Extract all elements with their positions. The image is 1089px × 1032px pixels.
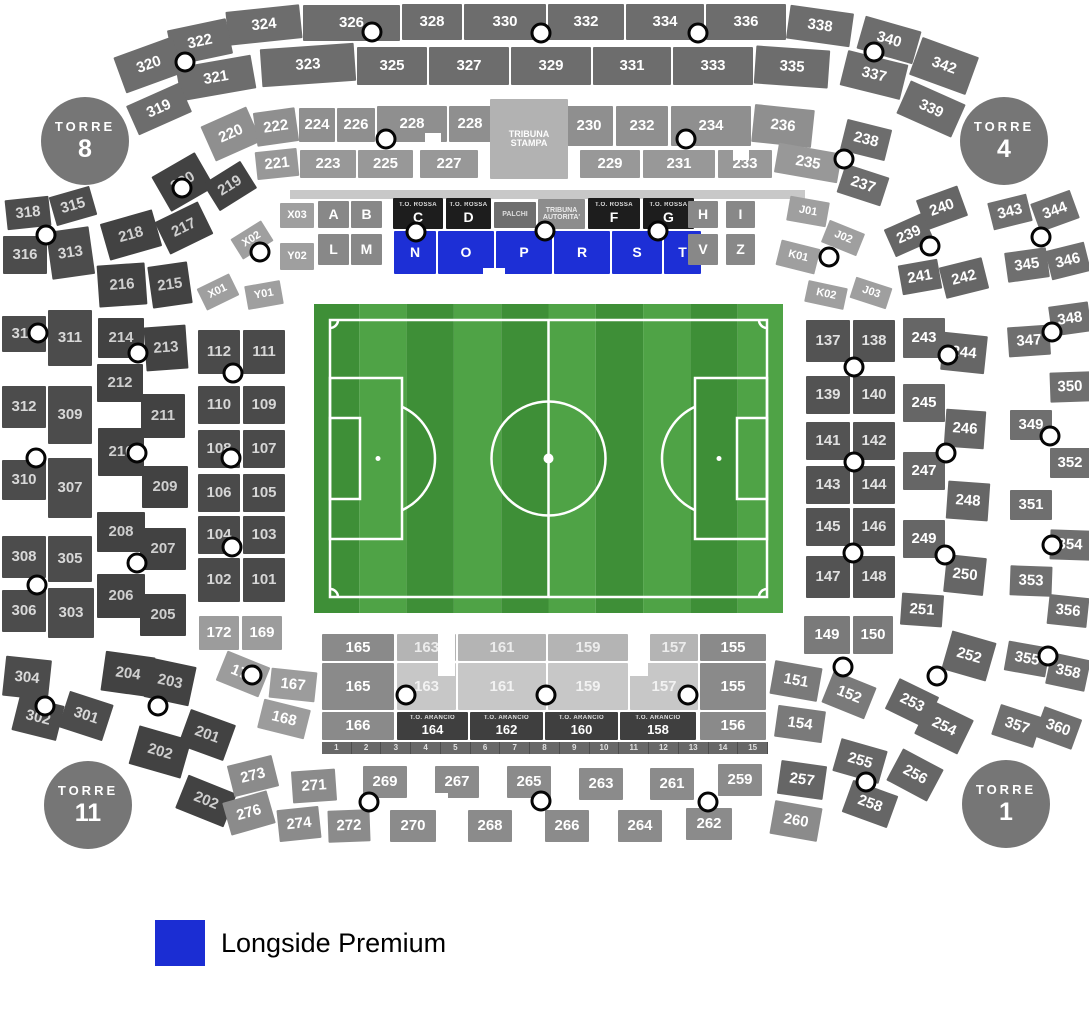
legend-label: Longside Premium bbox=[221, 928, 446, 959]
section-345[interactable]: 345 bbox=[1004, 247, 1050, 283]
section-221[interactable]: 221 bbox=[255, 148, 300, 180]
section-label: 352 bbox=[1057, 455, 1082, 471]
section-label: 346 bbox=[1054, 250, 1082, 271]
section-109[interactable]: 109 bbox=[243, 386, 285, 424]
section-label: 304 bbox=[14, 669, 41, 687]
section-219[interactable]: 219 bbox=[203, 161, 257, 211]
section-236[interactable]: 236 bbox=[751, 104, 815, 148]
section-152[interactable]: 152 bbox=[821, 671, 876, 720]
section-165[interactable]: 165 bbox=[322, 663, 394, 710]
section-305[interactable]: 305 bbox=[48, 536, 92, 582]
section-label: 231 bbox=[666, 156, 691, 172]
section-sublabel: T.O. ARANCIO bbox=[635, 715, 680, 721]
section-label: 342 bbox=[930, 54, 959, 77]
section-label: 262 bbox=[696, 816, 721, 832]
section-label: 350 bbox=[1057, 379, 1083, 396]
section-label: 264 bbox=[627, 818, 652, 834]
section-237[interactable]: 237 bbox=[836, 164, 889, 207]
section-256[interactable]: 256 bbox=[886, 748, 944, 801]
strip-cell-5[interactable]: 5 bbox=[441, 742, 471, 754]
section-228[interactable]: 228 bbox=[449, 106, 491, 142]
section-label: 217 bbox=[169, 215, 198, 240]
section-353[interactable]: 353 bbox=[1009, 565, 1052, 596]
section-tribuna-stampa[interactable]: TRIBUNASTAMPA bbox=[490, 99, 568, 179]
section-label: H bbox=[698, 207, 708, 222]
section-f[interactable]: T.O. ROSSAF bbox=[588, 198, 640, 229]
section-351[interactable]: 351 bbox=[1010, 490, 1052, 520]
section-329[interactable]: 329 bbox=[511, 47, 591, 85]
section-168[interactable]: 168 bbox=[257, 699, 311, 740]
gate-marker-icon bbox=[406, 222, 427, 243]
section-248[interactable]: 248 bbox=[946, 481, 991, 522]
strip-cell-11[interactable]: 11 bbox=[619, 742, 649, 754]
section-label: 328 bbox=[419, 14, 444, 30]
section-259[interactable]: 259 bbox=[718, 764, 762, 796]
section-215[interactable]: 215 bbox=[147, 261, 192, 308]
section-343[interactable]: 343 bbox=[987, 194, 1033, 231]
section-label: 205 bbox=[150, 607, 175, 623]
section-label: 218 bbox=[117, 224, 145, 246]
section-label: 155 bbox=[720, 679, 745, 695]
section-304[interactable]: 304 bbox=[2, 656, 52, 701]
section-162[interactable]: T.O. ARANCIO162 bbox=[470, 712, 543, 740]
section-label: 229 bbox=[597, 156, 622, 172]
section-label: 107 bbox=[251, 441, 276, 457]
section-label: 208 bbox=[108, 524, 133, 540]
section-label: 152 bbox=[834, 683, 863, 707]
stair-notch bbox=[425, 133, 441, 145]
section-label: 336 bbox=[733, 14, 758, 30]
section-label: X01 bbox=[207, 283, 230, 302]
section-230[interactable]: 230 bbox=[565, 106, 613, 146]
section-label: STAMPA bbox=[511, 139, 548, 148]
gate-marker-icon bbox=[35, 696, 56, 717]
section-label: 269 bbox=[372, 774, 397, 790]
section-216[interactable]: 216 bbox=[97, 262, 148, 307]
section-label: 215 bbox=[157, 275, 184, 294]
section-label: 169 bbox=[249, 625, 274, 641]
stair-notch bbox=[628, 634, 648, 676]
section-111[interactable]: 111 bbox=[243, 330, 285, 374]
section-324[interactable]: 324 bbox=[225, 4, 302, 46]
section-sublabel: T.O. ROSSA bbox=[399, 202, 437, 208]
torre-number: 8 bbox=[78, 135, 92, 164]
section-229[interactable]: 229 bbox=[580, 150, 640, 178]
gate-marker-icon bbox=[250, 242, 271, 263]
section-167[interactable]: 167 bbox=[269, 668, 318, 703]
section-148[interactable]: 148 bbox=[853, 556, 895, 598]
section-307[interactable]: 307 bbox=[48, 458, 92, 518]
section-label: 316 bbox=[12, 247, 37, 263]
gate-marker-icon bbox=[936, 443, 957, 464]
section-326[interactable]: 326 bbox=[303, 5, 400, 41]
section-138[interactable]: 138 bbox=[853, 320, 895, 362]
section-label: 148 bbox=[861, 569, 886, 585]
section-272[interactable]: 272 bbox=[327, 809, 370, 842]
section-label: X03 bbox=[287, 210, 307, 222]
section-label: 356 bbox=[1055, 602, 1082, 620]
section-101[interactable]: 101 bbox=[243, 558, 285, 602]
strip-cell-12[interactable]: 12 bbox=[649, 742, 679, 754]
section-164[interactable]: T.O. ARANCIO164 bbox=[397, 712, 468, 740]
football-pitch bbox=[312, 302, 785, 615]
section-263[interactable]: 263 bbox=[579, 768, 623, 800]
section-226[interactable]: 226 bbox=[337, 108, 375, 142]
section-333[interactable]: 333 bbox=[673, 47, 753, 85]
section-319[interactable]: 319 bbox=[126, 83, 192, 136]
section-149[interactable]: 149 bbox=[804, 616, 850, 654]
section-157[interactable]: 157 bbox=[650, 634, 698, 661]
section-label: 254 bbox=[929, 714, 958, 739]
section-139[interactable]: 139 bbox=[806, 376, 850, 414]
section-label: 139 bbox=[815, 387, 840, 403]
section-label: 204 bbox=[115, 664, 142, 683]
section-336[interactable]: 336 bbox=[706, 4, 786, 40]
section-273[interactable]: 273 bbox=[227, 755, 279, 797]
section-label: 161 bbox=[489, 679, 514, 695]
section-257[interactable]: 257 bbox=[777, 760, 827, 800]
strip-cell-9[interactable]: 9 bbox=[560, 742, 590, 754]
section-140[interactable]: 140 bbox=[853, 376, 895, 414]
section-268[interactable]: 268 bbox=[468, 810, 512, 842]
section-155[interactable]: 155 bbox=[700, 634, 766, 661]
section-241[interactable]: 241 bbox=[898, 259, 943, 295]
section-a[interactable]: A bbox=[318, 201, 349, 228]
section-b[interactable]: B bbox=[351, 201, 382, 228]
section-label: 324 bbox=[251, 16, 278, 34]
section-103[interactable]: 103 bbox=[243, 516, 285, 554]
section-212[interactable]: 212 bbox=[97, 364, 143, 402]
section-label: 164 bbox=[422, 723, 444, 737]
strip-cell-3[interactable]: 3 bbox=[381, 742, 411, 754]
section-251[interactable]: 251 bbox=[900, 593, 944, 628]
section-label: 351 bbox=[1018, 497, 1043, 513]
section-357[interactable]: 357 bbox=[991, 704, 1043, 748]
section-label: 242 bbox=[950, 267, 978, 288]
section-label: 240 bbox=[928, 196, 957, 219]
section-label: D bbox=[463, 210, 473, 225]
section-222[interactable]: 222 bbox=[253, 107, 299, 147]
section-label: 234 bbox=[698, 118, 723, 134]
section-label: 160 bbox=[571, 723, 593, 737]
section-252[interactable]: 252 bbox=[941, 630, 996, 681]
section-label: 274 bbox=[286, 815, 313, 833]
section-137[interactable]: 137 bbox=[806, 320, 850, 362]
section-label: 157 bbox=[661, 640, 686, 656]
section-label: 232 bbox=[629, 118, 654, 134]
gate-marker-icon bbox=[531, 791, 552, 812]
section-147[interactable]: 147 bbox=[806, 556, 850, 598]
section-label: 310 bbox=[11, 472, 36, 488]
section-label: 322 bbox=[186, 32, 214, 53]
section-label: 256 bbox=[900, 762, 929, 788]
section-150[interactable]: 150 bbox=[853, 616, 893, 654]
section-label: K01 bbox=[787, 249, 809, 265]
section-label: 306 bbox=[11, 603, 36, 619]
torre-word: TORRE bbox=[58, 783, 118, 798]
section-205[interactable]: 205 bbox=[140, 594, 186, 636]
section-sublabel: T.O. ROSSA bbox=[449, 202, 487, 208]
gate-marker-icon bbox=[688, 23, 709, 44]
section-262[interactable]: 262 bbox=[686, 808, 732, 840]
section-327[interactable]: 327 bbox=[429, 47, 509, 85]
section-label: 318 bbox=[15, 204, 42, 222]
section-label: 138 bbox=[861, 333, 886, 349]
section-261[interactable]: 261 bbox=[650, 768, 694, 800]
section-label: J02 bbox=[832, 229, 853, 247]
section-264[interactable]: 264 bbox=[618, 810, 662, 842]
section-144[interactable]: 144 bbox=[853, 466, 895, 504]
gate-marker-icon bbox=[26, 448, 47, 469]
strip-cell-6[interactable]: 6 bbox=[471, 742, 501, 754]
section-y01[interactable]: Y01 bbox=[244, 280, 284, 310]
gate-marker-icon bbox=[221, 448, 242, 469]
section-274[interactable]: 274 bbox=[276, 806, 321, 842]
section-106[interactable]: 106 bbox=[198, 474, 240, 512]
gate-marker-icon bbox=[172, 178, 193, 199]
section-label: 163 bbox=[414, 640, 439, 656]
section-label: 357 bbox=[1003, 715, 1032, 738]
gate-marker-icon bbox=[1031, 227, 1052, 248]
section-208[interactable]: 208 bbox=[97, 512, 145, 552]
section-label: 207 bbox=[150, 541, 175, 557]
section-label: 101 bbox=[251, 572, 276, 588]
section-label: 163 bbox=[414, 679, 439, 695]
strip-cell-8[interactable]: 8 bbox=[530, 742, 560, 754]
strip-cell-13[interactable]: 13 bbox=[679, 742, 709, 754]
section-label: 147 bbox=[815, 569, 840, 585]
gate-marker-icon bbox=[128, 343, 149, 364]
strip-cell-1[interactable]: 1 bbox=[322, 742, 352, 754]
section-331[interactable]: 331 bbox=[593, 47, 671, 85]
section-label: 225 bbox=[373, 156, 398, 172]
section-151[interactable]: 151 bbox=[769, 660, 822, 702]
section-label: M bbox=[361, 242, 373, 257]
section-label: 223 bbox=[315, 156, 340, 172]
section-335[interactable]: 335 bbox=[754, 45, 830, 88]
section-y02[interactable]: Y02 bbox=[280, 243, 314, 270]
section-label: 202 bbox=[146, 741, 174, 763]
section-356[interactable]: 356 bbox=[1047, 594, 1089, 628]
section-j03[interactable]: J03 bbox=[850, 277, 893, 310]
section-x01[interactable]: X01 bbox=[197, 273, 240, 310]
stair-notch bbox=[630, 794, 646, 806]
section-label: 142 bbox=[861, 433, 886, 449]
section-label: 236 bbox=[770, 117, 797, 135]
section-label: 337 bbox=[860, 64, 888, 85]
section-209[interactable]: 209 bbox=[142, 466, 188, 508]
stair-notch bbox=[733, 146, 749, 160]
strip-cell-15[interactable]: 15 bbox=[738, 742, 768, 754]
section-palchi[interactable]: PALCHI bbox=[494, 202, 536, 228]
section-sublabel: T.O. ROSSA bbox=[595, 202, 633, 208]
section-label: 360 bbox=[1044, 716, 1073, 739]
section-x03[interactable]: X03 bbox=[280, 203, 314, 228]
front-row-band bbox=[290, 190, 805, 199]
section-m[interactable]: M bbox=[351, 234, 382, 265]
section-146[interactable]: 146 bbox=[853, 508, 895, 546]
section-h[interactable]: H bbox=[688, 201, 718, 228]
section-312[interactable]: 312 bbox=[2, 386, 46, 428]
section-346[interactable]: 346 bbox=[1045, 242, 1089, 281]
section-159[interactable]: 159 bbox=[548, 634, 628, 661]
legend: Longside Premium bbox=[155, 920, 446, 966]
gate-marker-icon bbox=[1038, 646, 1059, 667]
section-label: 158 bbox=[647, 723, 669, 737]
section-label: 307 bbox=[57, 480, 82, 496]
section-141[interactable]: 141 bbox=[806, 422, 850, 460]
section-266[interactable]: 266 bbox=[545, 810, 589, 842]
section-label: 165 bbox=[345, 679, 370, 695]
section-label: 141 bbox=[815, 433, 840, 449]
strip-cell-10[interactable]: 10 bbox=[590, 742, 620, 754]
section-label: 338 bbox=[807, 16, 834, 35]
section-label: 222 bbox=[263, 117, 290, 136]
lower-tier-row-strip: 123456789101112131415 bbox=[322, 742, 768, 754]
section-242[interactable]: 242 bbox=[939, 257, 989, 299]
gate-marker-icon bbox=[536, 685, 557, 706]
section-label: 202 bbox=[191, 789, 220, 813]
section-306[interactable]: 306 bbox=[2, 590, 46, 632]
section-102[interactable]: 102 bbox=[198, 558, 240, 602]
section-label: 109 bbox=[251, 397, 276, 413]
section-label: 343 bbox=[996, 201, 1024, 222]
section-label: 156 bbox=[720, 718, 745, 734]
section-v[interactable]: V bbox=[688, 234, 718, 265]
section-154[interactable]: 154 bbox=[774, 705, 826, 743]
section-label: 203 bbox=[156, 672, 184, 693]
section-223[interactable]: 223 bbox=[300, 150, 356, 178]
strip-cell-7[interactable]: 7 bbox=[500, 742, 530, 754]
section-j01[interactable]: J01 bbox=[786, 196, 830, 228]
torre-word: TORRE bbox=[974, 119, 1034, 134]
section-label: 213 bbox=[153, 339, 179, 356]
section-270[interactable]: 270 bbox=[390, 810, 436, 842]
section-213[interactable]: 213 bbox=[144, 325, 189, 372]
gate-marker-icon bbox=[676, 129, 697, 150]
section-309[interactable]: 309 bbox=[48, 386, 92, 444]
section-165[interactable]: 165 bbox=[322, 634, 394, 661]
gate-marker-icon bbox=[1042, 535, 1063, 556]
section-360[interactable]: 360 bbox=[1034, 706, 1083, 750]
section-325[interactable]: 325 bbox=[357, 47, 427, 85]
section-311[interactable]: 311 bbox=[48, 310, 92, 366]
section-338[interactable]: 338 bbox=[786, 5, 854, 48]
section-315[interactable]: 315 bbox=[49, 186, 98, 226]
section-156[interactable]: 156 bbox=[700, 712, 766, 740]
section-k01[interactable]: K01 bbox=[775, 240, 820, 275]
strip-cell-14[interactable]: 14 bbox=[709, 742, 739, 754]
section-245[interactable]: 245 bbox=[903, 384, 945, 422]
section-161[interactable]: 161 bbox=[458, 663, 546, 710]
section-323[interactable]: 323 bbox=[260, 43, 356, 87]
section-227[interactable]: 227 bbox=[420, 150, 478, 178]
section-332[interactable]: 332 bbox=[548, 4, 624, 40]
section-352[interactable]: 352 bbox=[1050, 448, 1089, 478]
section-label: 347 bbox=[1016, 332, 1042, 349]
gate-marker-icon bbox=[27, 575, 48, 596]
gate-marker-icon bbox=[834, 149, 855, 170]
section-label: 145 bbox=[815, 519, 840, 535]
gate-marker-icon bbox=[843, 543, 864, 564]
section-172[interactable]: 172 bbox=[199, 616, 239, 650]
section-143[interactable]: 143 bbox=[806, 466, 850, 504]
section-158[interactable]: T.O. ARANCIO158 bbox=[620, 712, 696, 740]
section-218[interactable]: 218 bbox=[100, 209, 162, 260]
section-166[interactable]: 166 bbox=[322, 712, 394, 740]
section-308[interactable]: 308 bbox=[2, 536, 46, 578]
gate-marker-icon bbox=[535, 221, 556, 242]
section-350[interactable]: 350 bbox=[1049, 371, 1089, 402]
section-z[interactable]: Z bbox=[726, 234, 755, 265]
gate-marker-icon bbox=[127, 443, 148, 464]
section-label: R bbox=[577, 245, 587, 260]
section-145[interactable]: 145 bbox=[806, 508, 850, 546]
section-label: 105 bbox=[251, 485, 276, 501]
section-label: 154 bbox=[787, 714, 814, 733]
section-label: 251 bbox=[909, 601, 935, 618]
strip-cell-4[interactable]: 4 bbox=[411, 742, 441, 754]
section-161[interactable]: 161 bbox=[458, 634, 546, 661]
gate-marker-icon bbox=[935, 545, 956, 566]
section-225[interactable]: 225 bbox=[358, 150, 413, 178]
section-label: 353 bbox=[1018, 573, 1044, 590]
section-159[interactable]: 159 bbox=[548, 663, 628, 710]
section-label: 276 bbox=[235, 802, 263, 824]
section-217[interactable]: 217 bbox=[155, 201, 214, 254]
section-271[interactable]: 271 bbox=[291, 769, 337, 804]
section-206[interactable]: 206 bbox=[97, 574, 145, 618]
section-232[interactable]: 232 bbox=[616, 106, 668, 146]
section-160[interactable]: T.O. ARANCIO160 bbox=[545, 712, 618, 740]
section-303[interactable]: 303 bbox=[48, 588, 94, 638]
section-r[interactable]: R bbox=[554, 231, 610, 274]
section-label: 226 bbox=[343, 117, 368, 133]
section-label: 237 bbox=[849, 174, 878, 197]
section-211[interactable]: 211 bbox=[141, 394, 185, 438]
section-i[interactable]: I bbox=[726, 201, 755, 228]
section-235[interactable]: 235 bbox=[774, 143, 842, 184]
section-231[interactable]: 231 bbox=[643, 150, 715, 178]
section-label: 333 bbox=[700, 58, 725, 74]
section-110[interactable]: 110 bbox=[198, 386, 240, 424]
section-k02[interactable]: K02 bbox=[804, 280, 848, 310]
section-155[interactable]: 155 bbox=[700, 663, 766, 710]
section-label: 255 bbox=[846, 750, 874, 772]
section-label: 344 bbox=[1041, 199, 1070, 222]
gate-marker-icon bbox=[222, 537, 243, 558]
section-169[interactable]: 169 bbox=[242, 616, 282, 650]
section-label: K02 bbox=[815, 287, 837, 302]
section-label: TRIBUNA bbox=[546, 207, 578, 214]
torre-4: TORRE4 bbox=[960, 97, 1048, 185]
section-sublabel: T.O. ARANCIO bbox=[484, 715, 529, 721]
section-328[interactable]: 328 bbox=[402, 4, 462, 40]
section-label: 309 bbox=[57, 407, 82, 423]
section-301[interactable]: 301 bbox=[58, 691, 113, 741]
section-260[interactable]: 260 bbox=[769, 800, 822, 842]
section-l[interactable]: L bbox=[318, 234, 349, 265]
gate-marker-icon bbox=[1042, 322, 1063, 343]
section-107[interactable]: 107 bbox=[243, 430, 285, 468]
strip-cell-2[interactable]: 2 bbox=[352, 742, 382, 754]
section-224[interactable]: 224 bbox=[299, 108, 335, 142]
section-label: 311 bbox=[58, 330, 82, 346]
section-d[interactable]: T.O. ROSSAD bbox=[446, 198, 491, 229]
section-label: S bbox=[632, 245, 641, 260]
section-105[interactable]: 105 bbox=[243, 474, 285, 512]
section-label: 327 bbox=[456, 58, 481, 74]
